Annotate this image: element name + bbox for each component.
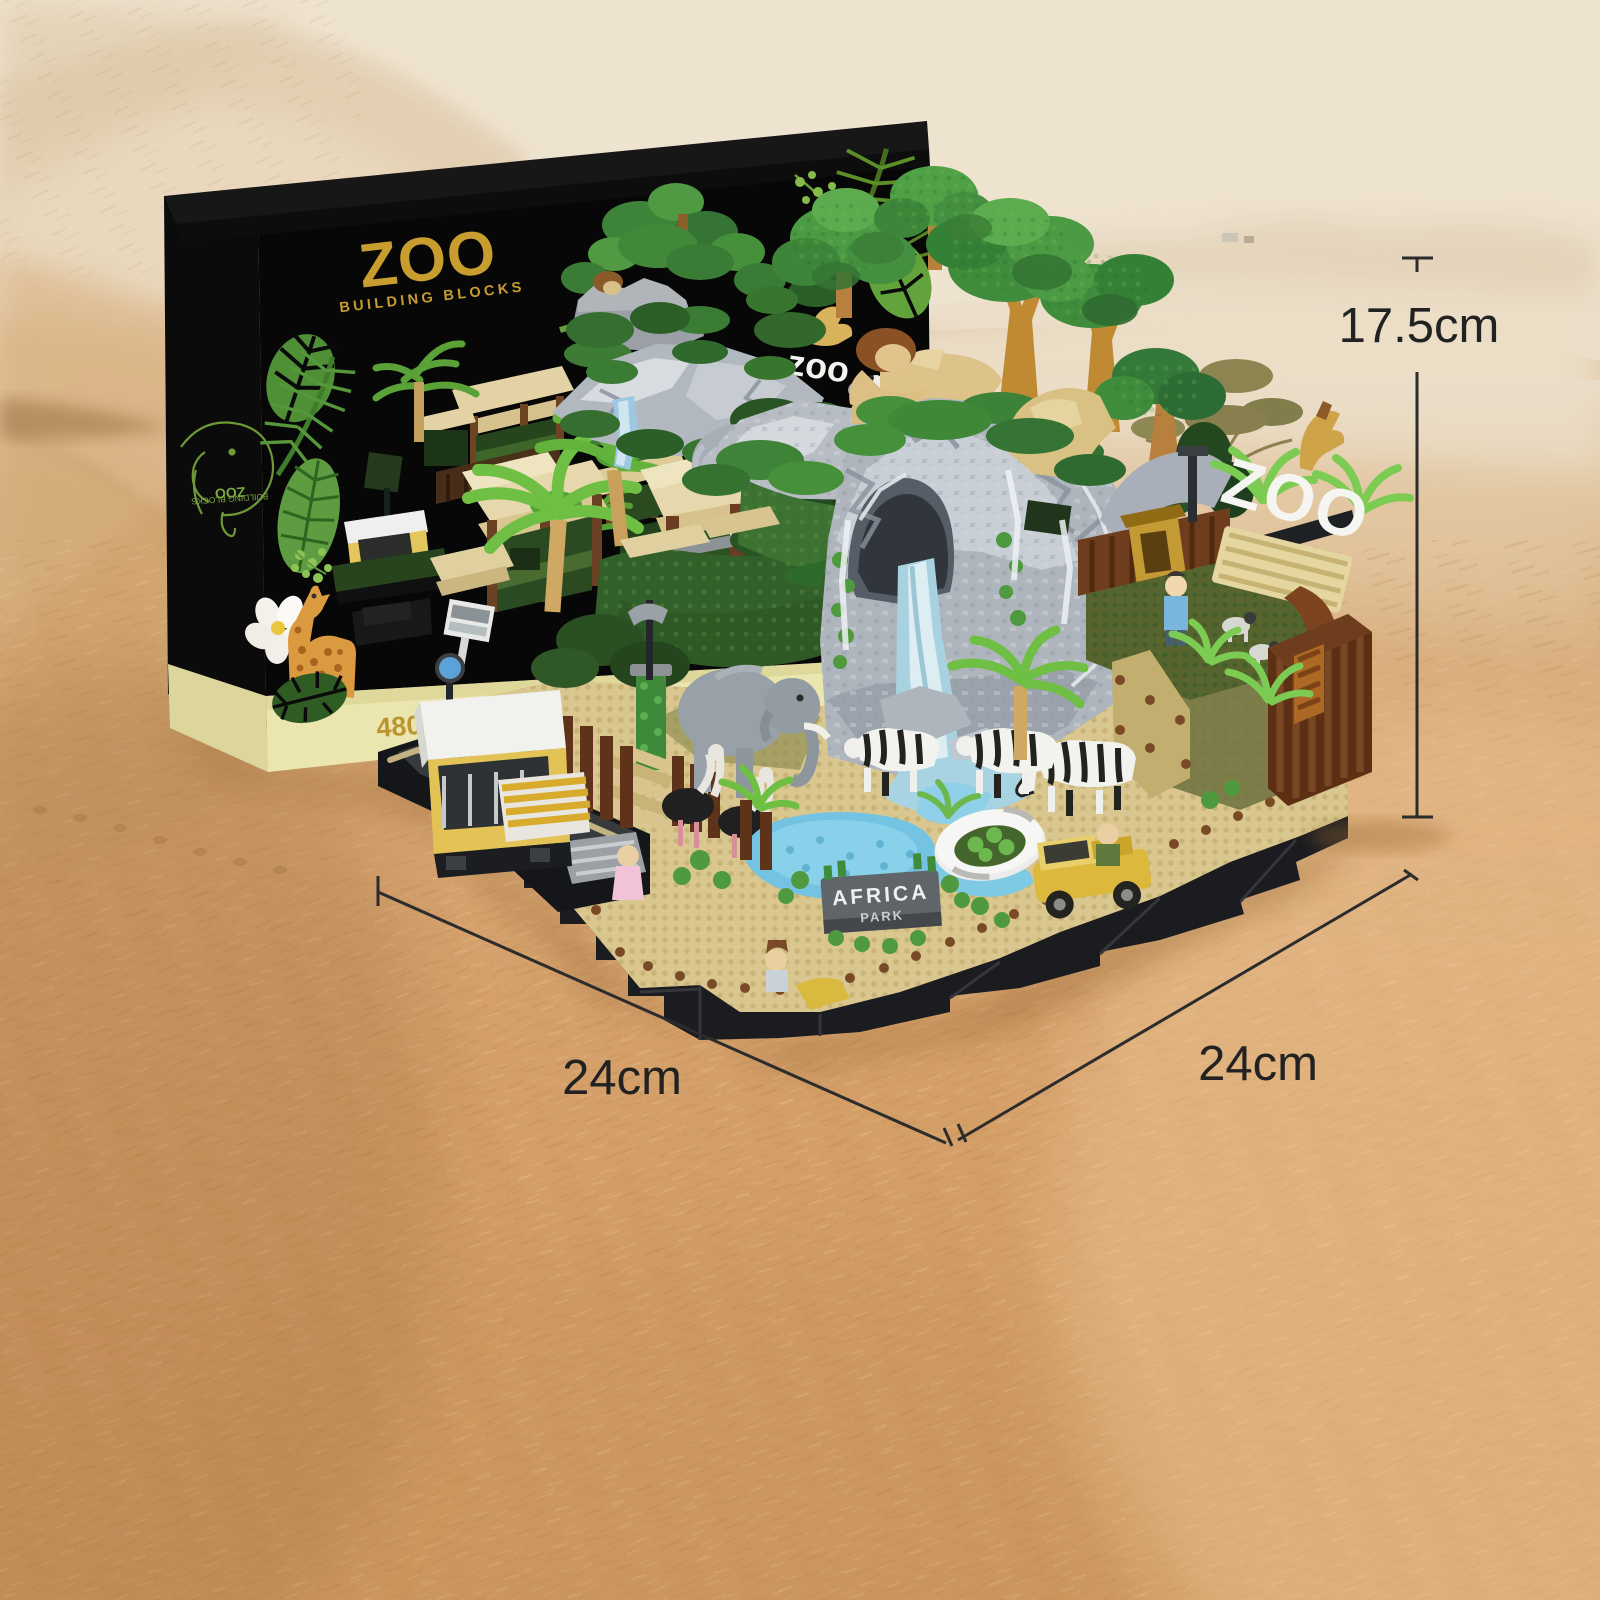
svg-text:24cm: 24cm xyxy=(1198,1037,1318,1091)
svg-text:PARK: PARK xyxy=(860,907,905,925)
svg-text:24cm: 24cm xyxy=(562,1051,682,1105)
svg-text:17.5cm: 17.5cm xyxy=(1339,299,1500,353)
